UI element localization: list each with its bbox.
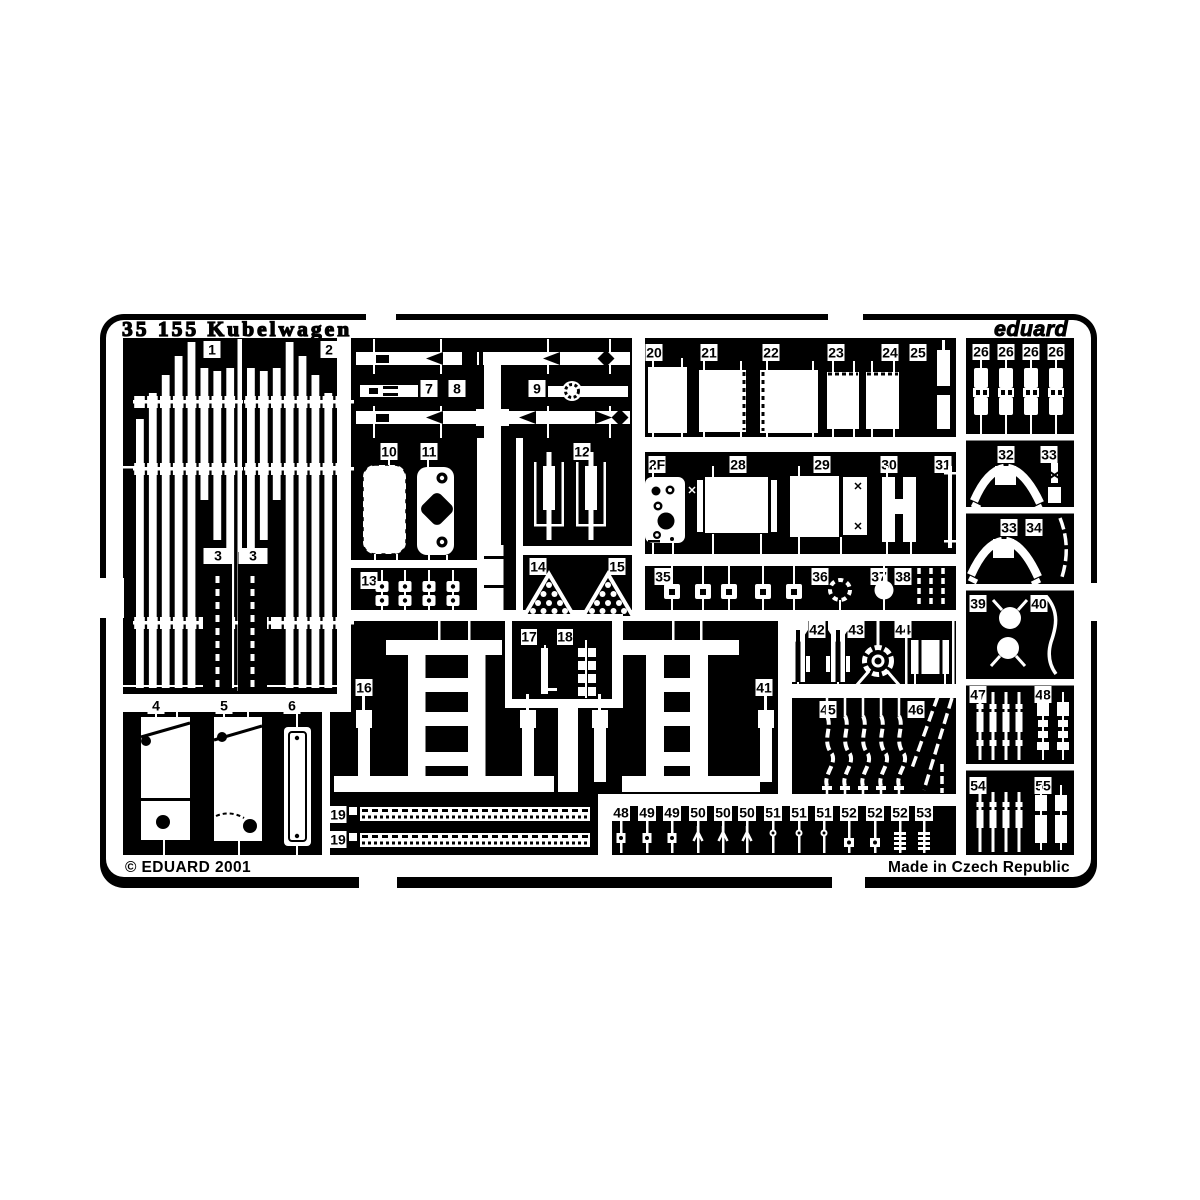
svg-text:52: 52 <box>841 805 857 821</box>
svg-text:54: 54 <box>970 778 986 794</box>
svg-text:43: 43 <box>848 622 864 638</box>
svg-text:2F: 2F <box>649 457 666 473</box>
svg-text:41: 41 <box>756 680 772 696</box>
svg-text:24: 24 <box>882 345 898 361</box>
svg-text:12: 12 <box>574 444 590 460</box>
svg-text:50: 50 <box>690 805 706 821</box>
svg-text:44: 44 <box>895 622 911 638</box>
svg-text:23: 23 <box>828 345 844 361</box>
svg-text:51: 51 <box>791 805 807 821</box>
svg-text:35 155 Kubelwagen: 35 155 Kubelwagen <box>122 317 352 341</box>
svg-text:51: 51 <box>765 805 781 821</box>
svg-text:1: 1 <box>208 342 216 358</box>
svg-text:39: 39 <box>970 596 986 612</box>
svg-text:13: 13 <box>361 573 377 589</box>
svg-text:Made in Czech Republic: Made in Czech Republic <box>888 859 1070 876</box>
svg-text:29: 29 <box>814 457 830 473</box>
svg-text:36: 36 <box>812 569 828 585</box>
svg-text:40: 40 <box>1031 596 1047 612</box>
svg-text:26: 26 <box>1023 344 1039 360</box>
svg-text:35: 35 <box>655 569 671 585</box>
svg-text:47: 47 <box>970 687 986 703</box>
svg-text:32: 32 <box>998 447 1014 463</box>
svg-text:19: 19 <box>330 807 346 823</box>
svg-text:33: 33 <box>1041 447 1057 463</box>
svg-text:11: 11 <box>422 444 437 460</box>
svg-text:17: 17 <box>521 629 537 645</box>
svg-text:20: 20 <box>646 345 662 361</box>
svg-text:52: 52 <box>867 805 883 821</box>
svg-text:46: 46 <box>908 702 924 718</box>
svg-text:30: 30 <box>881 457 897 473</box>
svg-text:52: 52 <box>892 805 908 821</box>
svg-text:4: 4 <box>152 698 160 714</box>
svg-text:2: 2 <box>325 342 333 358</box>
svg-text:18: 18 <box>557 629 573 645</box>
svg-text:50: 50 <box>739 805 755 821</box>
svg-text:9: 9 <box>533 381 541 397</box>
svg-text:48: 48 <box>613 805 629 821</box>
svg-text:33: 33 <box>1001 520 1017 536</box>
svg-text:49: 49 <box>639 805 655 821</box>
svg-text:19: 19 <box>330 832 346 848</box>
svg-text:26: 26 <box>973 344 989 360</box>
svg-text:50: 50 <box>715 805 731 821</box>
svg-text:3: 3 <box>214 548 222 564</box>
svg-text:6: 6 <box>288 698 296 714</box>
svg-text:53: 53 <box>916 805 932 821</box>
svg-text:51: 51 <box>816 805 832 821</box>
svg-text:38: 38 <box>895 569 911 585</box>
svg-text:5: 5 <box>220 698 228 714</box>
svg-text:14: 14 <box>530 559 546 575</box>
svg-text:22: 22 <box>763 345 779 361</box>
svg-text:34: 34 <box>1026 520 1042 536</box>
svg-text:15: 15 <box>609 559 625 575</box>
svg-text:28: 28 <box>730 457 746 473</box>
svg-text:10: 10 <box>381 444 397 460</box>
svg-text:8: 8 <box>453 381 461 397</box>
svg-text:eduard: eduard <box>994 317 1069 341</box>
svg-text:16: 16 <box>356 680 372 696</box>
svg-text:21: 21 <box>701 345 717 361</box>
svg-text:3: 3 <box>249 548 257 564</box>
svg-text:55: 55 <box>1035 778 1051 794</box>
svg-text:25: 25 <box>910 345 926 361</box>
svg-text:26: 26 <box>998 344 1014 360</box>
svg-text:7: 7 <box>425 381 433 397</box>
svg-text:42: 42 <box>809 622 825 638</box>
svg-text:© EDUARD 2001: © EDUARD 2001 <box>125 859 251 876</box>
svg-text:49: 49 <box>664 805 680 821</box>
svg-text:26: 26 <box>1048 344 1064 360</box>
